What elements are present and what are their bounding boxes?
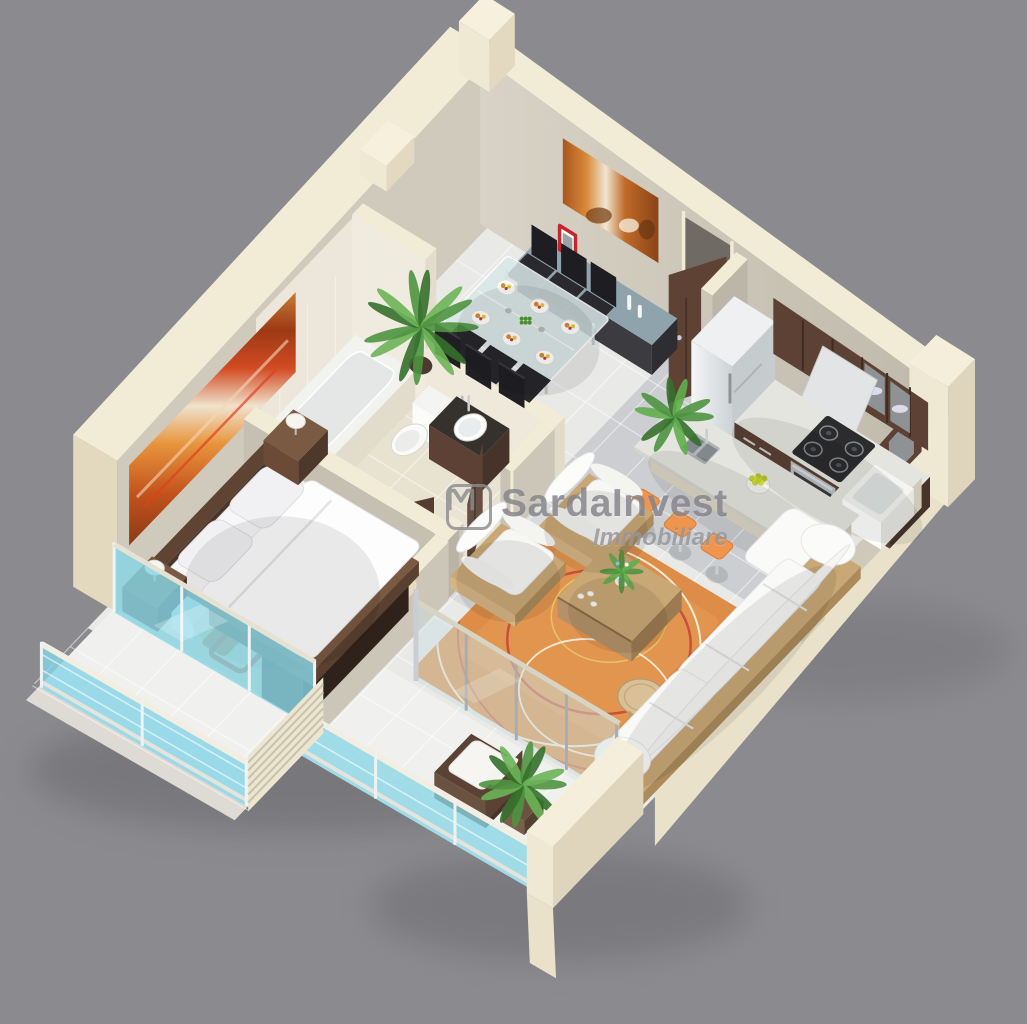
floor-plan-screenshot: SardaInvest Immobiliare [0, 0, 1027, 1024]
floor-plan-render [0, 0, 1027, 1024]
left-wall-end-cap [73, 435, 117, 613]
